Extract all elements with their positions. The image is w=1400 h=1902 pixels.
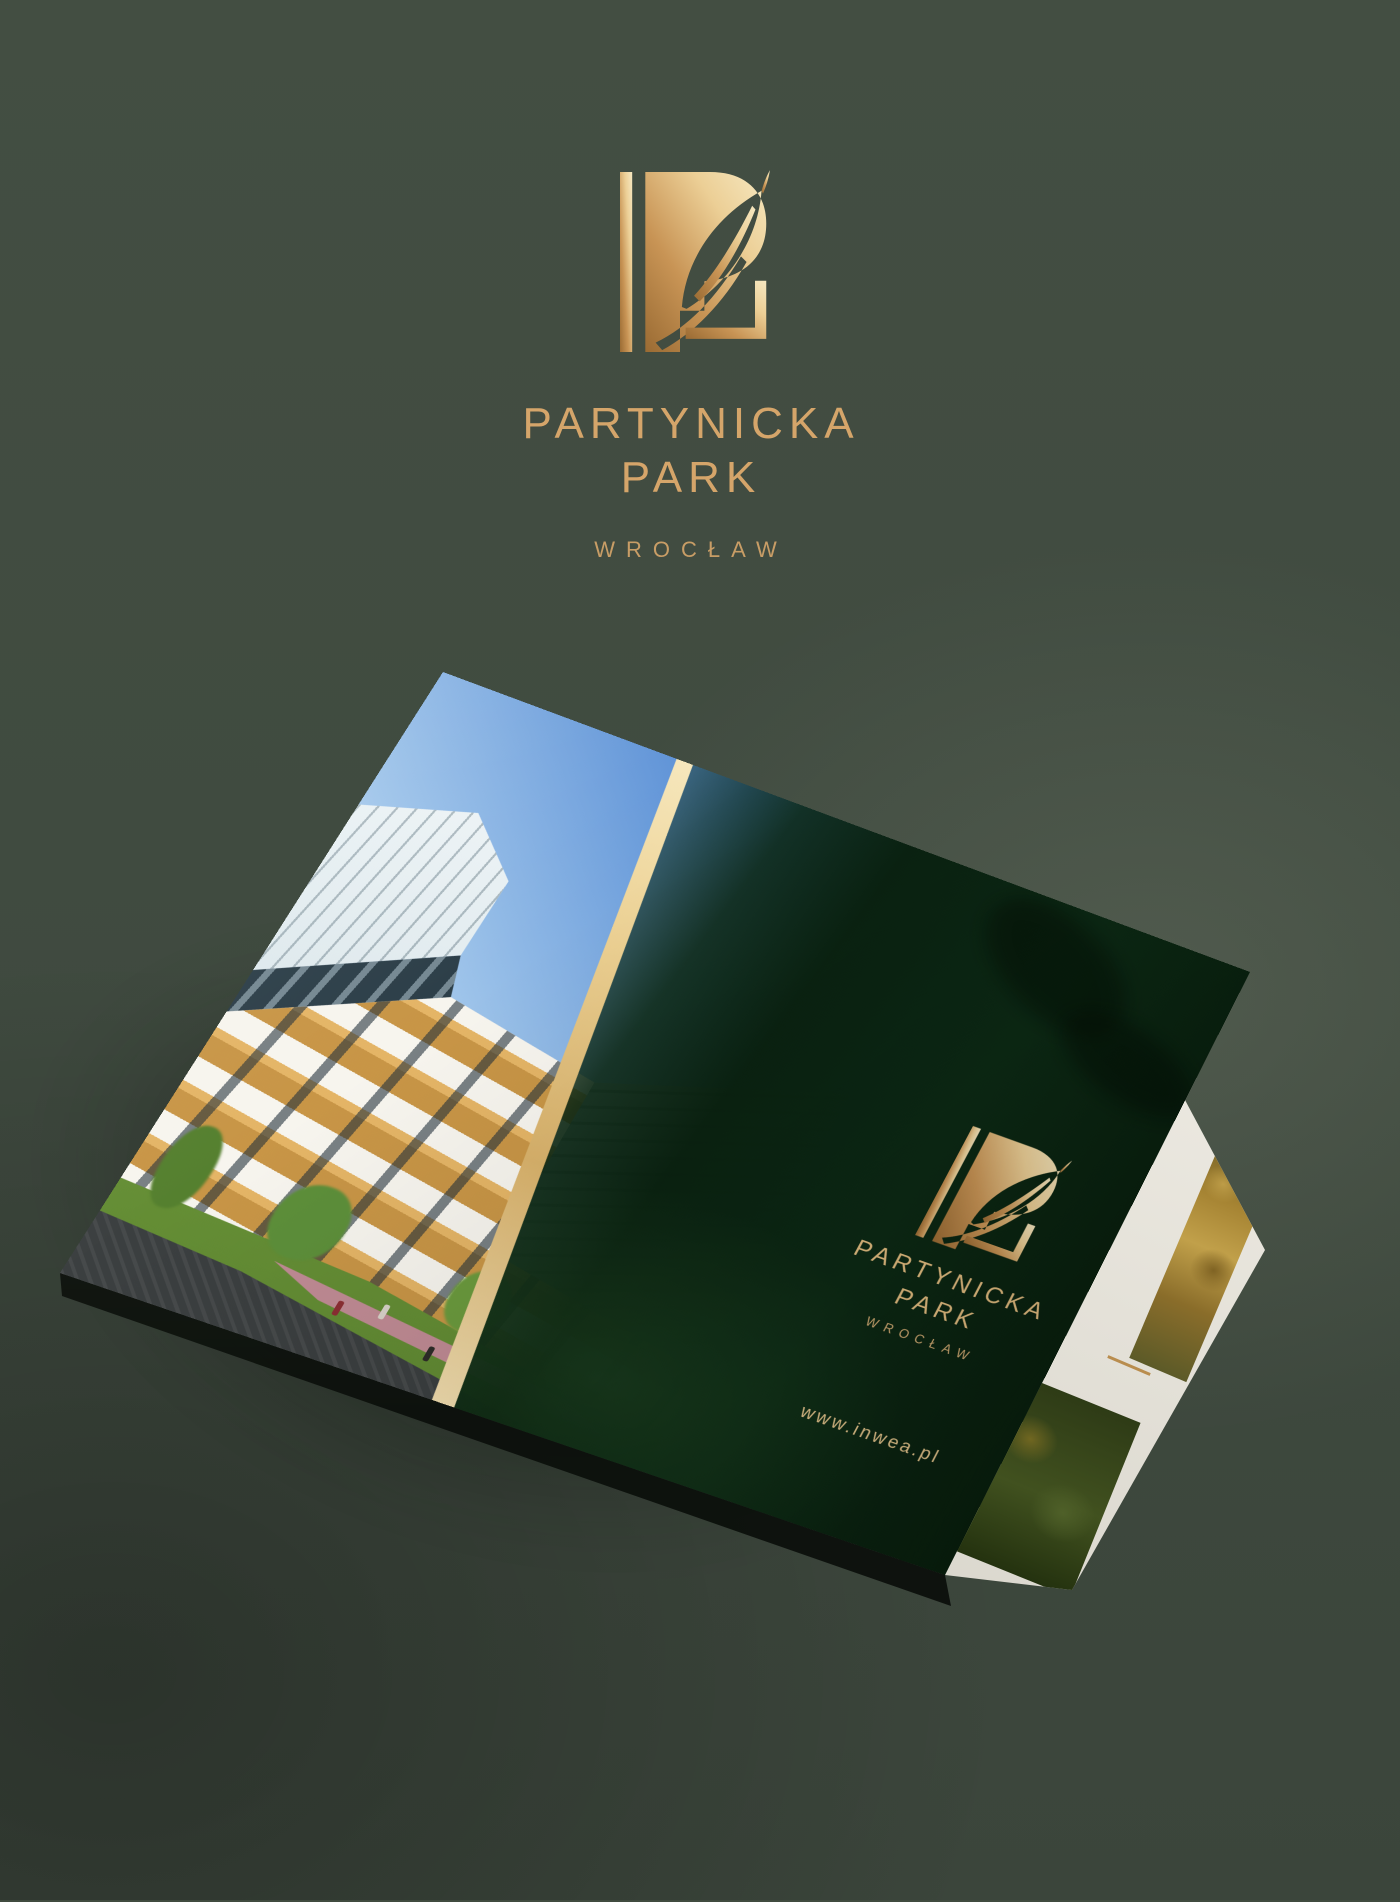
leaf-p-icon (620, 170, 770, 352)
brand-title-line1: PARTYNICKA (341, 399, 1041, 449)
partynicka-monogram-icon (914, 1125, 1072, 1272)
partynicka-monogram-icon (620, 170, 770, 354)
brand-city-label: WROCŁAW (341, 537, 1041, 563)
brand-title-line2: PARK (341, 453, 1041, 503)
leaf-p-icon (915, 1125, 1072, 1271)
